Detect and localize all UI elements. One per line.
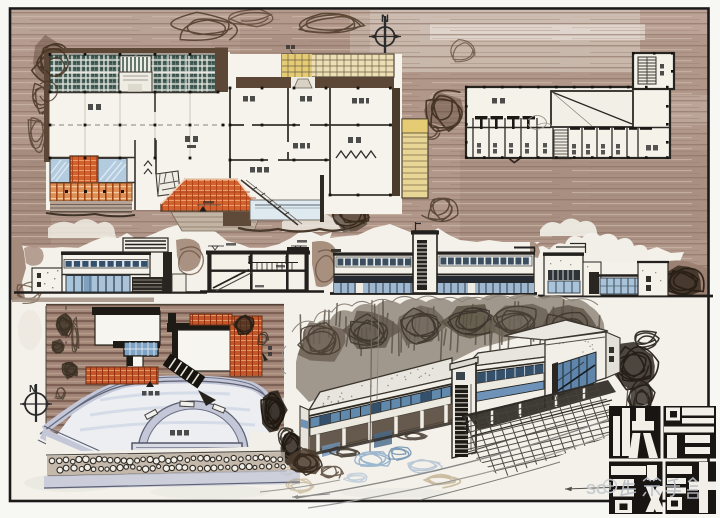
- svg-text:N: N: [381, 13, 389, 25]
- svg-text:N: N: [29, 384, 36, 395]
